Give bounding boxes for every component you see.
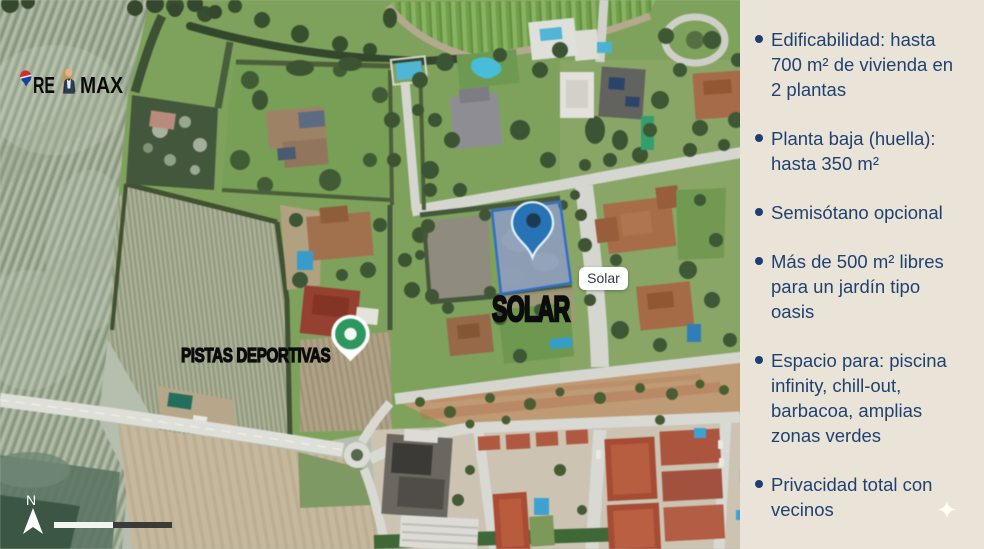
svg-text:N: N	[26, 492, 36, 508]
svg-text:MAX: MAX	[80, 72, 124, 96]
svg-text:RE: RE	[33, 72, 55, 96]
